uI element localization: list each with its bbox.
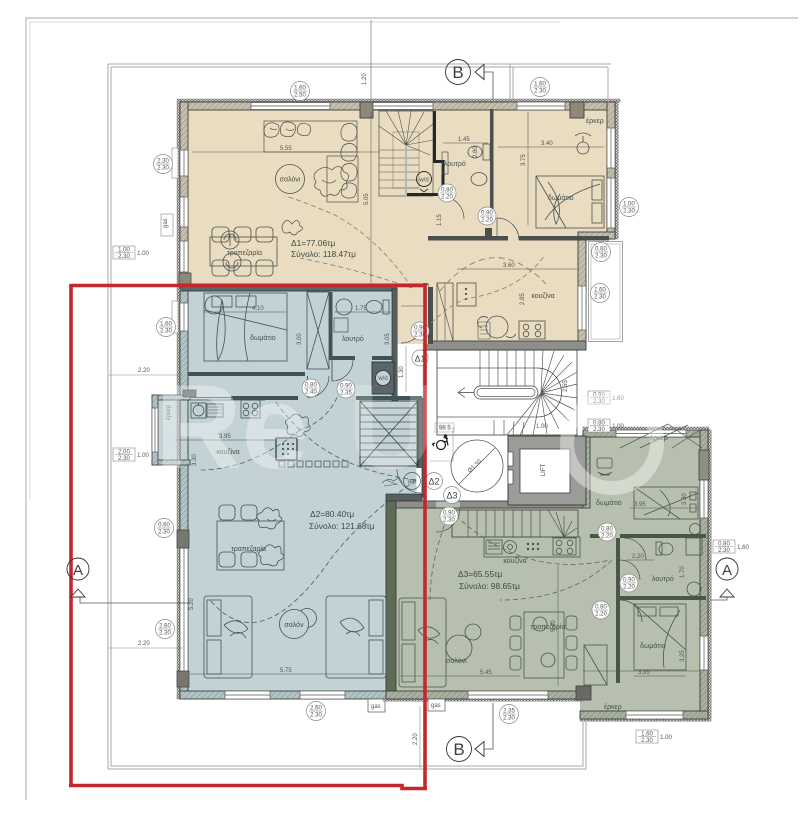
svg-text:1.60: 1.60: [594, 288, 606, 294]
svg-text:w/d: w/d: [418, 178, 428, 184]
svg-text:1.60: 1.60: [534, 82, 546, 88]
svg-text:2.20: 2.20: [623, 585, 635, 591]
svg-text:2.85: 2.85: [520, 293, 526, 305]
svg-text:1.00: 1.00: [660, 735, 672, 741]
svg-text:δωμάτιο: δωμάτιο: [640, 642, 666, 650]
svg-text:σαλόνι: σαλόνι: [446, 657, 467, 665]
svg-text:2.30: 2.30: [443, 518, 455, 524]
svg-text:2.30: 2.30: [158, 530, 170, 536]
svg-text:κουζίνα: κουζίνα: [503, 557, 526, 565]
svg-text:1.45: 1.45: [458, 137, 470, 143]
svg-text:σαλόνι: σαλόνι: [280, 176, 301, 184]
svg-text:2.30: 2.30: [641, 738, 653, 744]
svg-text:3.40: 3.40: [541, 141, 553, 147]
svg-text:2.20: 2.20: [632, 554, 644, 560]
svg-text:Σύνολο: 121.68τμ: Σύνολο: 121.68τμ: [309, 521, 375, 531]
svg-text:Δ1=77.06τμ: Δ1=77.06τμ: [291, 238, 335, 248]
svg-text:1.00: 1.00: [612, 424, 624, 430]
svg-text:3.00: 3.00: [297, 333, 303, 345]
svg-text:2.50: 2.50: [294, 93, 306, 99]
svg-text:2.20: 2.20: [138, 368, 150, 374]
svg-text:δωμάτιο: δωμάτιο: [548, 194, 574, 202]
svg-text:τραπεζαρία: τραπεζαρία: [531, 623, 566, 631]
svg-text:2.30: 2.30: [594, 295, 606, 301]
svg-text:5.75: 5.75: [280, 668, 292, 674]
svg-text:1.00: 1.00: [536, 424, 548, 430]
svg-text:2.35: 2.35: [503, 709, 515, 715]
svg-text:2.30: 2.30: [118, 456, 130, 462]
svg-text:2.30: 2.30: [159, 631, 171, 637]
svg-text:4.10: 4.10: [252, 306, 264, 312]
svg-text:0.80: 0.80: [718, 542, 730, 548]
svg-text:1.00: 1.00: [623, 202, 635, 208]
svg-text:δωμάτιο: δωμάτιο: [250, 334, 276, 342]
svg-text:Σύνολο: 98.65τμ: Σύνολο: 98.65τμ: [459, 581, 520, 591]
svg-text:2.30: 2.30: [310, 713, 322, 719]
svg-text:2.30: 2.30: [593, 427, 605, 433]
svg-text:B: B: [452, 63, 463, 82]
svg-text:3.95: 3.95: [634, 502, 646, 508]
svg-text:5.20: 5.20: [189, 598, 195, 610]
svg-text:τραπεζαρία: τραπεζαρία: [231, 545, 266, 553]
svg-text:3.25: 3.25: [680, 650, 686, 662]
svg-text:2.20: 2.20: [601, 534, 613, 540]
svg-text:0.90: 0.90: [443, 511, 455, 517]
svg-text:λουτρό: λουτρό: [342, 335, 364, 343]
svg-text:gas: gas: [431, 703, 441, 709]
svg-text:2.30: 2.30: [157, 159, 169, 165]
svg-text:2.30: 2.30: [160, 329, 172, 335]
svg-text:κουζίνα: κουζίνα: [531, 292, 554, 300]
svg-text:5.40: 5.40: [551, 620, 557, 632]
svg-text:0.80: 0.80: [441, 188, 453, 194]
svg-text:0.80: 0.80: [601, 527, 613, 533]
svg-text:2.30: 2.30: [623, 209, 635, 215]
svg-text:98 5: 98 5: [439, 426, 451, 432]
svg-text:LIFT: LIFT: [541, 464, 547, 477]
svg-text:2.20: 2.20: [413, 733, 419, 745]
svg-text:1.00: 1.00: [118, 248, 130, 254]
svg-text:τραπεζαρία: τραπεζαρία: [227, 249, 262, 257]
svg-text:1.00: 1.00: [137, 453, 149, 459]
svg-text:1.15: 1.15: [437, 214, 443, 226]
svg-text:1.75: 1.75: [355, 306, 367, 312]
svg-text:1.20: 1.20: [362, 73, 368, 85]
svg-text:λουτρό: λουτρό: [444, 160, 466, 168]
svg-text:A: A: [73, 562, 83, 579]
svg-text:2.20: 2.20: [481, 218, 493, 224]
svg-text:2.30: 2.30: [534, 89, 546, 95]
svg-text:gas: gas: [371, 704, 381, 710]
svg-text:0.60: 0.60: [158, 523, 170, 529]
svg-text:2.60: 2.60: [310, 706, 322, 712]
svg-text:B: B: [453, 740, 464, 759]
svg-text:2.20: 2.20: [138, 641, 150, 647]
svg-text:3.60: 3.60: [503, 263, 515, 269]
svg-text:έρκερ: έρκερ: [586, 117, 604, 125]
svg-text:5.05: 5.05: [364, 193, 370, 205]
svg-text:έρκερ: έρκερ: [604, 703, 622, 711]
svg-text:1.00: 1.00: [137, 251, 149, 257]
svg-text:2.30: 2.30: [503, 716, 515, 722]
svg-text:2.30: 2.30: [157, 166, 169, 172]
svg-text:1.60: 1.60: [641, 732, 653, 738]
svg-text:2.55: 2.55: [563, 380, 569, 392]
svg-text:3.05: 3.05: [385, 333, 391, 345]
svg-text:1.60: 1.60: [294, 86, 306, 92]
svg-text:2.30: 2.30: [118, 254, 130, 260]
svg-text:5.45: 5.45: [480, 670, 492, 676]
svg-text:Δ2=80.40τμ: Δ2=80.40τμ: [310, 509, 354, 519]
svg-text:2.80: 2.80: [473, 146, 479, 158]
svg-text:3.75: 3.75: [521, 154, 527, 166]
svg-text:1.60: 1.60: [160, 322, 172, 328]
svg-text:δωμάτιο: δωμάτιο: [596, 499, 622, 507]
svg-text:2.30: 2.30: [595, 254, 607, 260]
svg-text:Re: Re: [155, 360, 308, 494]
svg-text:2.30: 2.30: [718, 548, 730, 554]
svg-text:2.00: 2.00: [118, 450, 130, 456]
svg-text:5.55: 5.55: [280, 146, 292, 152]
svg-text:σαλόν: σαλόν: [284, 621, 304, 629]
svg-text:2.20: 2.20: [595, 612, 607, 618]
svg-text:λουτρό: λουτρό: [652, 575, 674, 583]
svg-text:1.60: 1.60: [737, 545, 749, 551]
svg-text:3.30: 3.30: [682, 493, 688, 505]
svg-text:0.80: 0.80: [595, 605, 607, 611]
svg-text:3.35: 3.35: [638, 670, 650, 676]
svg-text:0.90: 0.90: [623, 578, 635, 584]
svg-text:0.90: 0.90: [481, 211, 493, 217]
svg-text:A: A: [722, 562, 732, 579]
svg-text:Δ3: Δ3: [446, 491, 457, 501]
svg-text:1.70: 1.70: [680, 566, 686, 578]
svg-text:0.60: 0.60: [595, 247, 607, 253]
svg-text:2.60: 2.60: [159, 624, 171, 630]
svg-text:Σύνολο: 118.47τμ: Σύνολο: 118.47τμ: [291, 249, 356, 259]
svg-text:Δ3=65.55τμ: Δ3=65.55τμ: [458, 569, 502, 579]
svg-text:U: U: [348, 360, 435, 494]
svg-text:2.20: 2.20: [441, 195, 453, 201]
svg-text:0.80: 0.80: [593, 421, 605, 427]
svg-text:gas: gas: [163, 218, 169, 228]
